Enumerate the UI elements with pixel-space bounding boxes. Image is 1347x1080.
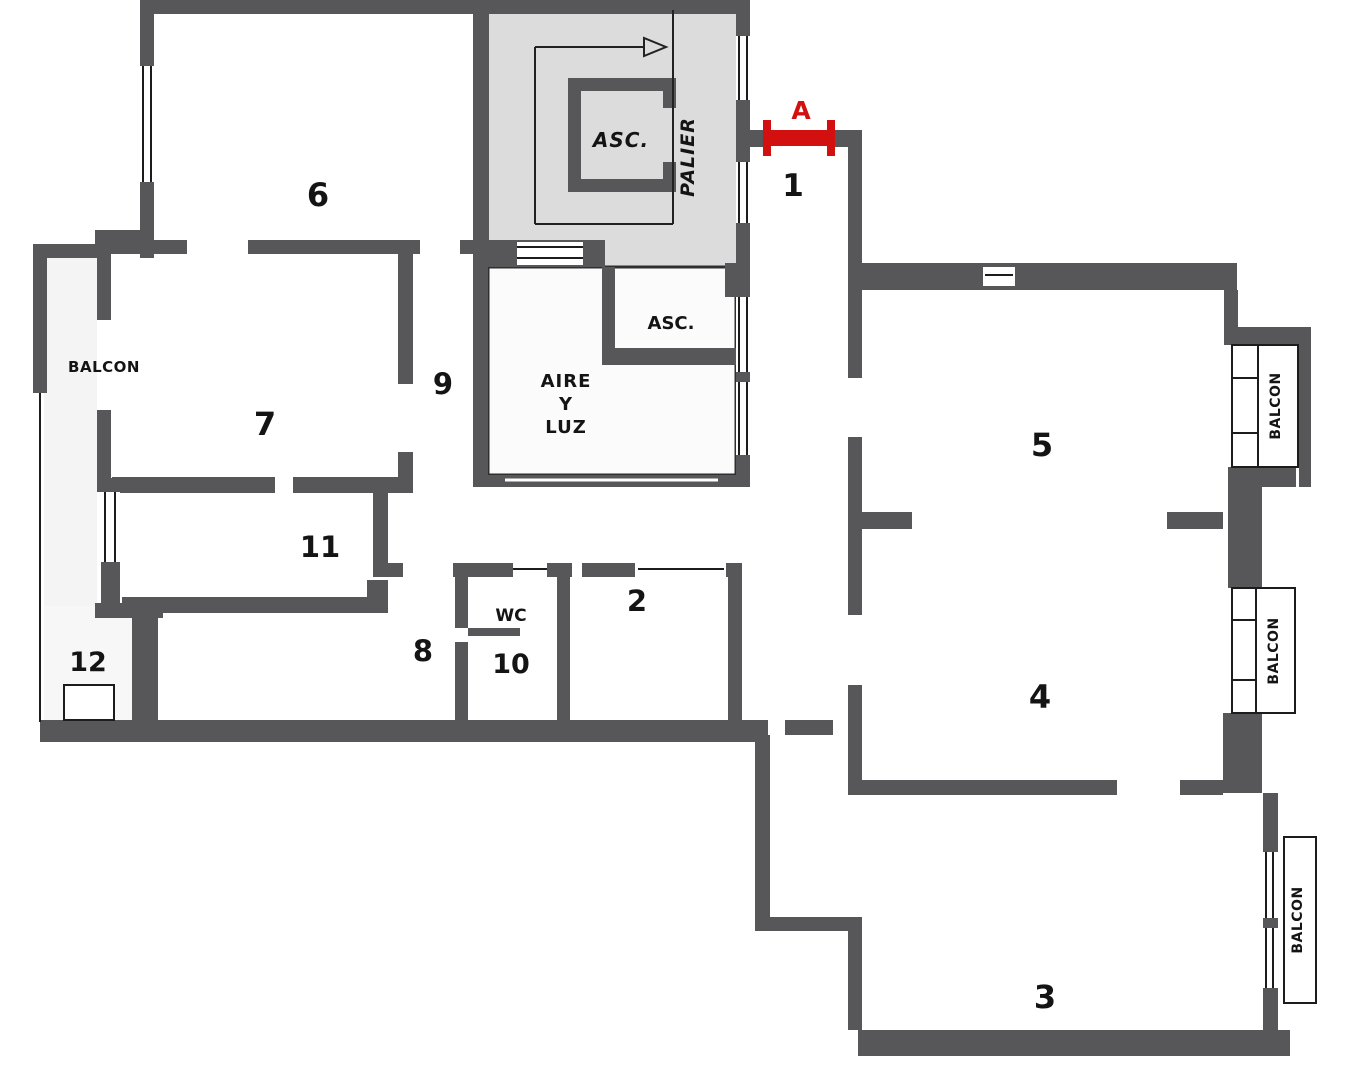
- room-10-label: 10: [492, 649, 530, 680]
- room-9-label: 9: [433, 367, 453, 401]
- room-7-label: 7: [254, 405, 276, 443]
- entrance-label: A: [791, 96, 811, 125]
- balcony-right-middle-label: BALCON: [1266, 617, 1282, 684]
- balcony-right-top-label: BALCON: [1268, 372, 1284, 439]
- room-8-label: 8: [413, 634, 433, 668]
- landing-label: PALIER: [677, 117, 699, 197]
- balcony-left-label: BALCON: [68, 358, 140, 376]
- balcony-right-bottom-label: BALCON: [1290, 886, 1306, 953]
- elevator-secondary-label: ASC.: [648, 313, 695, 334]
- lightwell-label-line3: LUZ: [545, 417, 587, 438]
- lightwell-label-line2: Y: [558, 394, 573, 415]
- floor-plan-page: A 1 2 3 4 5 6 7 8 9 10 11 12 WC ASC. ASC…: [0, 0, 1347, 1080]
- room-1-label: 1: [782, 168, 804, 204]
- room-12-label: 12: [69, 647, 107, 678]
- room-3-label: 3: [1034, 978, 1056, 1016]
- balcony-right-top-box: [1232, 345, 1298, 467]
- room-12-fixture-box: [64, 685, 114, 720]
- room-5-label: 5: [1031, 426, 1053, 464]
- lightwell-label-line1: AIRE: [541, 371, 592, 392]
- floor-plan: A 1 2 3 4 5 6 7 8 9 10 11 12 WC ASC. ASC…: [0, 0, 1347, 1080]
- room-11-label: 11: [300, 530, 340, 564]
- balcony-right-middle-box: [1232, 588, 1295, 713]
- entrance-door-marker: [763, 120, 835, 156]
- wc-label: WC: [495, 606, 526, 626]
- room-2-label: 2: [627, 584, 647, 618]
- elevator-main-label: ASC.: [591, 128, 649, 152]
- room-6-label: 6: [307, 176, 329, 214]
- room-4-label: 4: [1029, 678, 1051, 716]
